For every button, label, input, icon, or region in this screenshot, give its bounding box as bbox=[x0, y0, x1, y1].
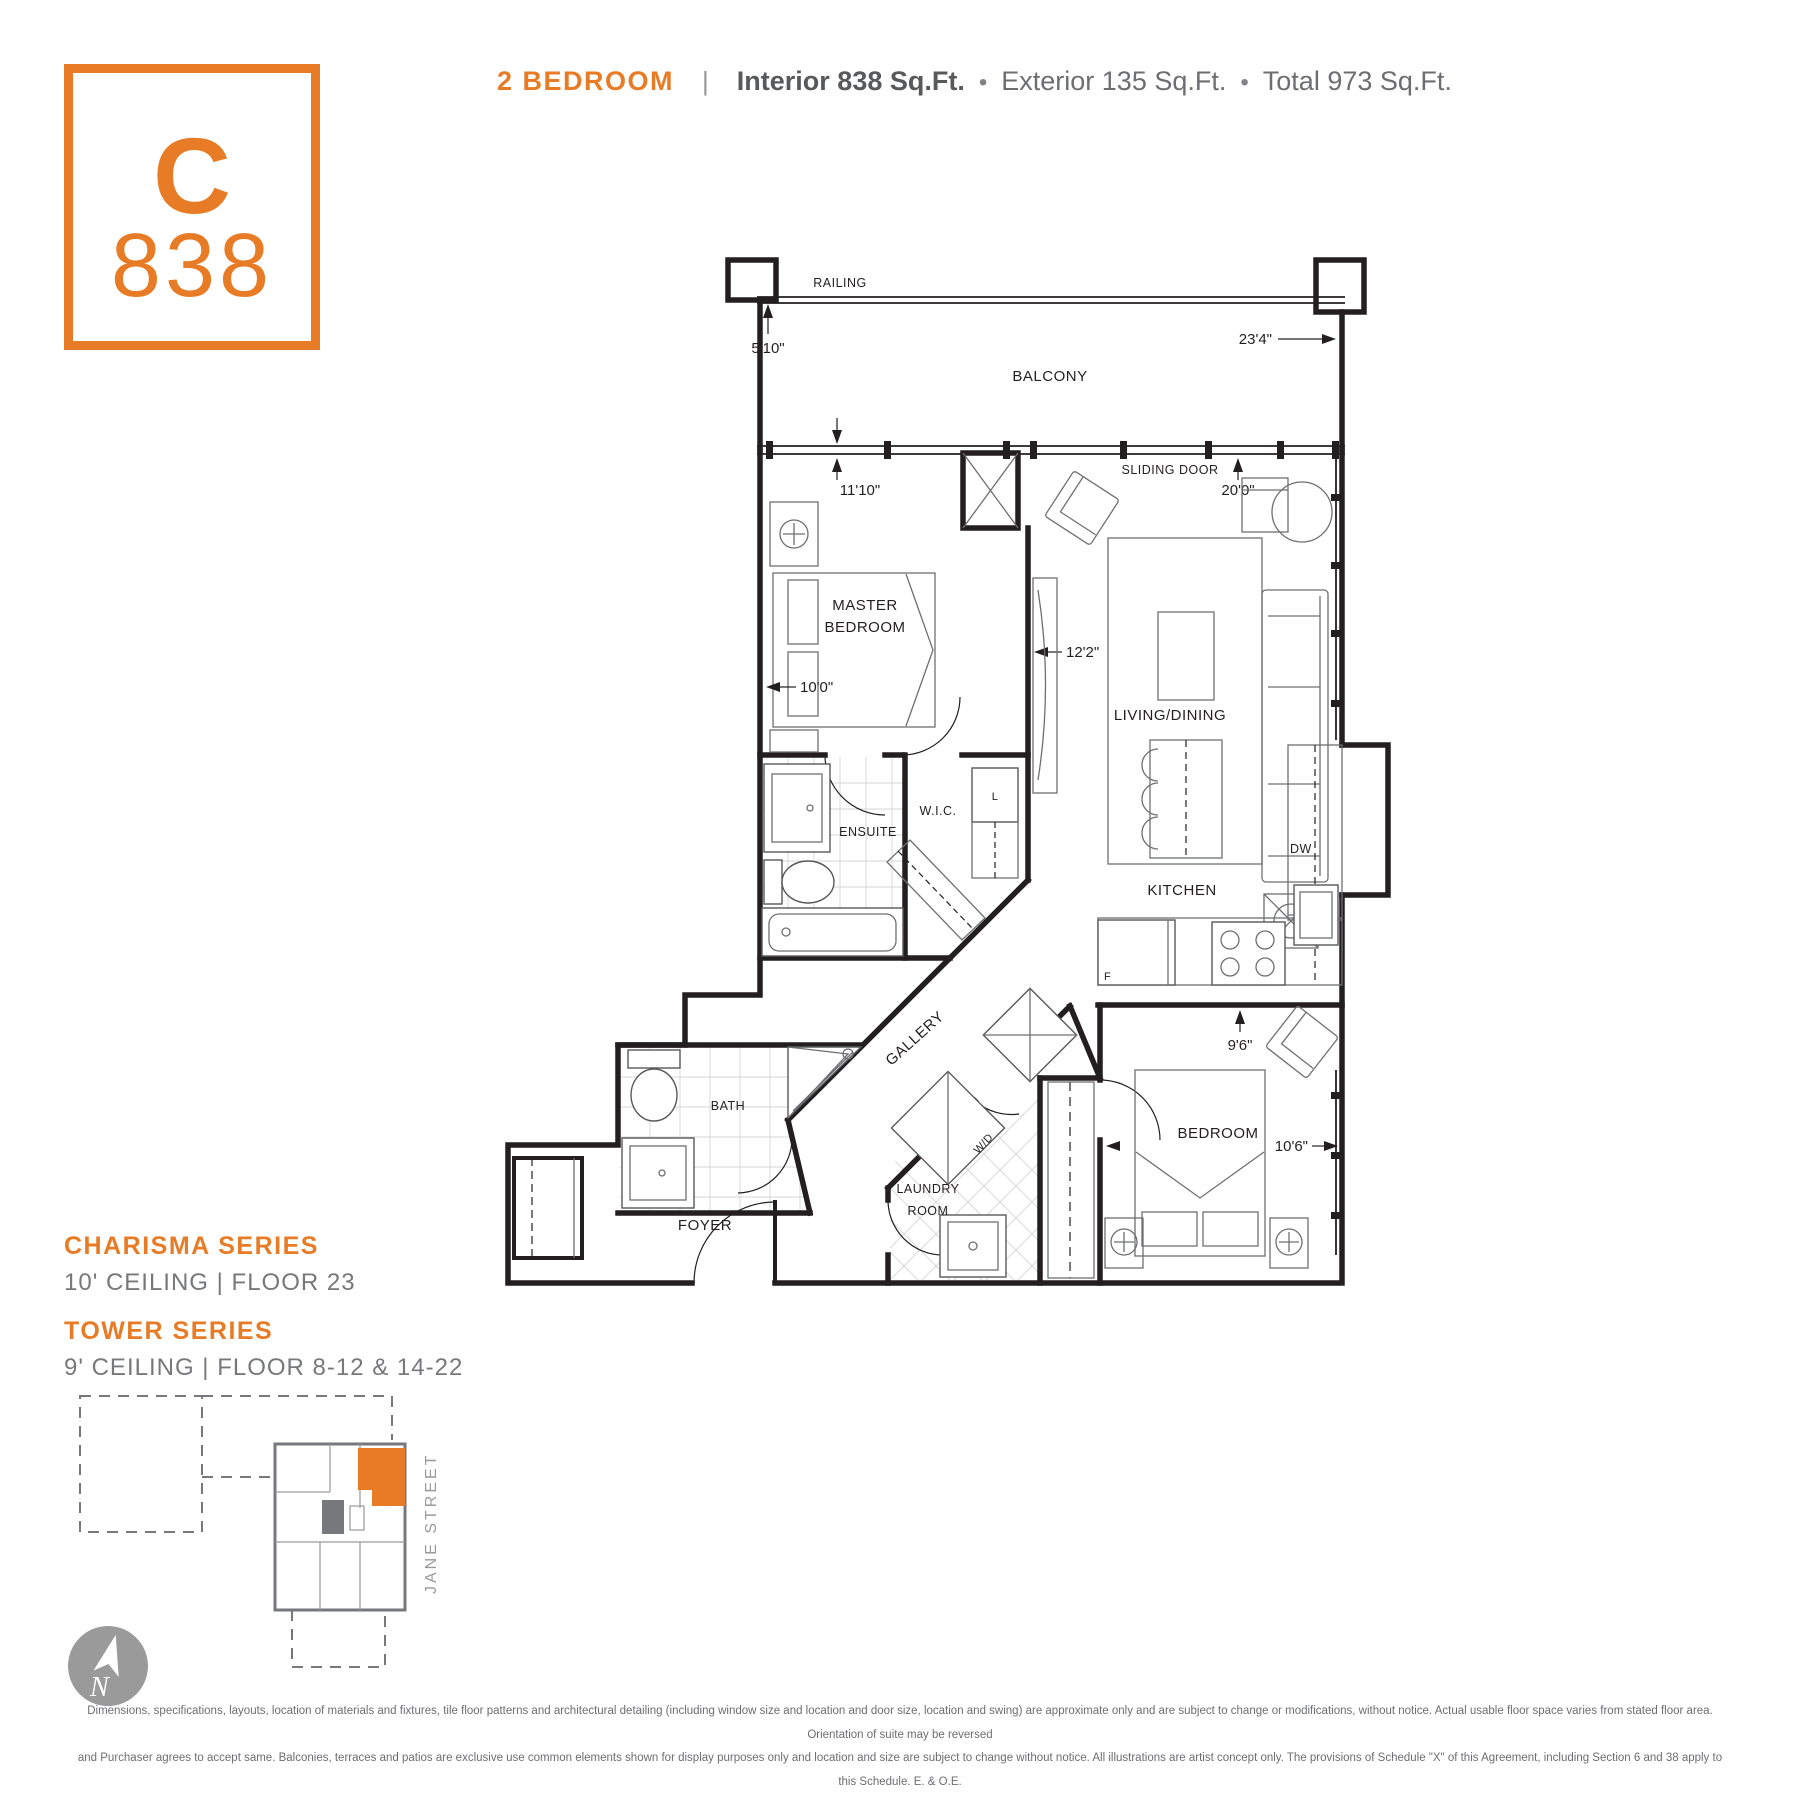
bedroom-chair bbox=[1266, 1006, 1339, 1079]
living-depth-dim bbox=[1034, 647, 1062, 657]
laundry-shaft bbox=[983, 988, 1076, 1081]
balcony-depth-text: 5'10" bbox=[751, 340, 784, 357]
dishwasher-label: DW bbox=[1290, 842, 1312, 856]
bath-shower bbox=[788, 1047, 861, 1118]
laundry-sink bbox=[940, 1215, 1006, 1277]
foyer-label: FOYER bbox=[678, 1217, 732, 1234]
balcony-width-text: 23'4" bbox=[1239, 331, 1272, 348]
bedroom-depth-text: 10'6" bbox=[1275, 1138, 1308, 1155]
master-bedroom-label-2: BEDROOM bbox=[824, 619, 905, 636]
living-width-dim bbox=[1233, 458, 1243, 480]
laundry-label-1: LAUNDRY bbox=[896, 1182, 959, 1196]
header-strip: 2 BEDROOM | Interior 838 Sq.Ft. • Exteri… bbox=[497, 66, 1452, 97]
master-depth-dim bbox=[766, 682, 796, 692]
stove bbox=[1212, 922, 1285, 985]
wic-walls bbox=[887, 768, 1028, 958]
disclaimer-line-1: Dimensions, specifications, layouts, loc… bbox=[72, 1700, 1728, 1747]
unit-number: 838 bbox=[111, 221, 273, 311]
coffee-table bbox=[1158, 612, 1214, 700]
floor-plan: RAILING 5'10" BALCONY 23'4" SLIDING DOOR… bbox=[470, 240, 1430, 1320]
bedroom-wall-arrow bbox=[1106, 1141, 1120, 1151]
ensuite-vanity bbox=[764, 764, 830, 852]
exterior-area: Exterior 135 Sq.Ft. bbox=[1001, 66, 1226, 97]
sliding-door-label: SLIDING DOOR bbox=[1122, 463, 1219, 477]
linen-label: L bbox=[992, 791, 999, 803]
street-label: JANE STREET bbox=[423, 1453, 440, 1594]
bath-door-arc bbox=[738, 1138, 792, 1193]
ensuite-toilet bbox=[764, 860, 834, 904]
suite-type: 2 BEDROOM bbox=[497, 66, 674, 97]
living-armchair bbox=[1045, 471, 1120, 546]
master-depth-text: 10'0" bbox=[800, 679, 833, 696]
bedroom-label: BEDROOM bbox=[1177, 1125, 1258, 1142]
key-plan: JANE STREET N bbox=[60, 1382, 460, 1717]
master-bedroom-label-1: MASTER bbox=[832, 597, 898, 614]
header-separator: | bbox=[688, 66, 723, 97]
sliding-door-wall bbox=[757, 441, 1345, 459]
tower-series-info: 9' CEILING | FLOOR 8-12 & 14-22 bbox=[64, 1354, 463, 1382]
tv-console bbox=[1033, 578, 1057, 793]
bedroom-width-text: 9'6" bbox=[1228, 1037, 1253, 1054]
interior-area: Interior 838 Sq.Ft. bbox=[737, 66, 965, 97]
ensuite-label: ENSUITE bbox=[839, 825, 897, 839]
railing-label: RAILING bbox=[813, 276, 867, 290]
wic-label: W.I.C. bbox=[919, 804, 956, 818]
balcony-depth-dim bbox=[763, 304, 773, 334]
foyer-closet bbox=[514, 1158, 582, 1258]
bullet-icon: • bbox=[979, 69, 987, 97]
balcony-width-dim bbox=[1278, 334, 1336, 344]
charisma-series-title: CHARISMA SERIES bbox=[64, 1232, 463, 1261]
area-rug bbox=[1108, 538, 1262, 864]
bullet-icon: • bbox=[1240, 69, 1248, 97]
series-block: CHARISMA SERIES 10' CEILING | FLOOR 23 T… bbox=[64, 1232, 463, 1402]
total-area: Total 973 Sq.Ft. bbox=[1263, 66, 1452, 97]
master-width-dim bbox=[832, 418, 842, 480]
laundry-label-2: ROOM bbox=[908, 1204, 949, 1218]
brochure-page: C 838 2 BEDROOM | Interior 838 Sq.Ft. • … bbox=[0, 0, 1800, 1800]
tower-series-title: TOWER SERIES bbox=[64, 1317, 463, 1346]
bath-vanity bbox=[622, 1138, 694, 1208]
bath-toilet bbox=[628, 1050, 680, 1121]
kitchen-sink bbox=[1288, 885, 1338, 945]
disclaimer: Dimensions, specifications, layouts, loc… bbox=[72, 1700, 1728, 1794]
bedroom-depth-dim bbox=[1312, 1141, 1338, 1151]
charisma-series-info: 10' CEILING | FLOOR 23 bbox=[64, 1269, 463, 1297]
fridge-label: F bbox=[1104, 971, 1111, 983]
master-width-text: 11'10" bbox=[840, 482, 880, 499]
compass: N bbox=[68, 1626, 148, 1706]
keyplan-highlighted-unit bbox=[358, 1448, 405, 1506]
disclaimer-line-2: and Purchaser agrees to accept same. Bal… bbox=[72, 1747, 1728, 1794]
living-depth-text: 12'2" bbox=[1066, 644, 1099, 661]
bedroom-width-dim bbox=[1235, 1010, 1245, 1032]
ensuite-tub bbox=[762, 908, 903, 956]
bedroom-bed bbox=[1105, 1070, 1308, 1268]
keyplan-core bbox=[322, 1500, 344, 1534]
kitchen-label: KITCHEN bbox=[1147, 882, 1216, 899]
bath-label: BATH bbox=[711, 1099, 745, 1113]
compass-n: N bbox=[89, 1672, 110, 1703]
kitchen-island bbox=[1142, 740, 1222, 858]
unit-badge: C 838 bbox=[64, 64, 320, 350]
balcony-label: BALCONY bbox=[1012, 368, 1087, 385]
keyplan-podium-outline bbox=[80, 1396, 392, 1667]
living-dining-label: LIVING/DINING bbox=[1114, 707, 1226, 724]
round-table bbox=[1272, 482, 1332, 542]
sofa bbox=[1262, 590, 1328, 882]
unit-letter: C bbox=[153, 133, 231, 219]
